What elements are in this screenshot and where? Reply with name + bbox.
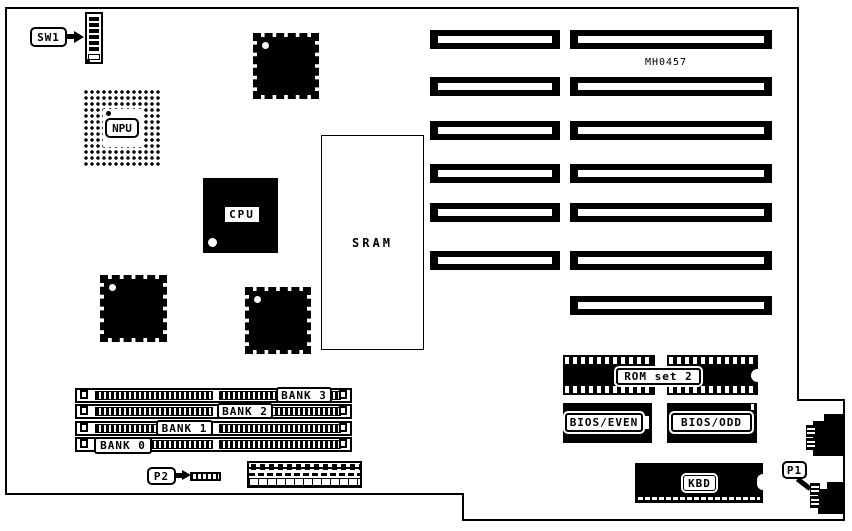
slot-opening: [578, 209, 764, 216]
slot-opening: [438, 36, 552, 43]
kbd-label: KBD: [683, 475, 716, 491]
slot-opening: [438, 127, 552, 134]
sram-chip: SRAM: [321, 135, 424, 350]
power-socket-row: [249, 478, 360, 486]
slot-opening: [438, 209, 552, 216]
qfp-chip-left: [100, 275, 167, 342]
expansion-slot: [430, 251, 560, 270]
dip-switch-segment: [89, 35, 99, 39]
simm-clip: [80, 423, 88, 432]
pin-header-icon: [806, 425, 816, 437]
power-connector: [247, 461, 362, 488]
sw1-label: SW1: [37, 31, 60, 44]
bank3-label: BANK 3: [276, 387, 332, 403]
simm-clip: [339, 439, 347, 448]
expansion-slot: [570, 77, 772, 96]
expansion-slot: [570, 121, 772, 140]
motherboard-diagram: SW1 NPU CPU SRAM MH0457: [0, 0, 852, 531]
kbd-pin-row: [638, 497, 760, 500]
bios-odd-label: BIOS/ODD: [671, 413, 752, 432]
p2-connector: [190, 472, 221, 481]
part-number-label: MH0457: [635, 57, 697, 68]
p1-label: P1: [787, 464, 802, 477]
expansion-slot: [430, 77, 560, 96]
rom-set-label: ROM set 2: [616, 368, 701, 385]
rom-pin-row: [669, 386, 756, 393]
power-pin-row: [249, 464, 360, 471]
p2-connector-pins: [193, 474, 219, 479]
rom-pin-row: [669, 357, 756, 364]
kbd-notch: [757, 474, 763, 490]
npu-center-area: NPU: [103, 109, 142, 147]
sw1-callout: SW1: [30, 27, 67, 47]
bios-odd-notch: [751, 404, 754, 410]
simm-clip: [339, 390, 347, 399]
slot-opening: [578, 36, 764, 43]
simm-socket-bank1: [75, 421, 352, 436]
dip-switch-pin1-dot: [85, 59, 90, 64]
slot-opening: [578, 257, 764, 264]
qfp-chip-right: [245, 287, 311, 354]
slot-opening: [438, 83, 552, 90]
dip-switch-segment: [89, 23, 99, 27]
cpu-chip: CPU: [203, 178, 278, 253]
dip-switch-segment: [89, 29, 99, 33]
simm-clip: [80, 390, 88, 399]
bios-even-label: BIOS/EVEN: [565, 413, 643, 432]
pin-header-icon: [810, 483, 820, 495]
bank0-label: BANK 0: [94, 437, 152, 454]
simm-contacts: [219, 440, 341, 449]
dip-switch-segment: [89, 41, 99, 45]
dip-switch-segment: [89, 17, 99, 21]
power-dash-row: [249, 473, 360, 476]
npu-label: NPU: [105, 118, 139, 138]
simm-clip: [339, 406, 347, 415]
pin1-marker-dot: [262, 42, 269, 49]
slot-opening: [578, 170, 764, 177]
slot-opening: [438, 257, 552, 264]
expansion-slot: [570, 30, 772, 49]
npu-pin1-dot: [106, 111, 111, 116]
pin-header-icon: [806, 438, 816, 450]
rom-pin-row: [565, 357, 653, 364]
pin1-marker-dot: [208, 238, 217, 247]
simm-contacts: [95, 391, 213, 400]
slot-opening: [578, 302, 764, 309]
simm-clip: [80, 406, 88, 415]
bank2-label: BANK 2: [217, 403, 273, 419]
simm-clip: [80, 439, 88, 448]
dip-switch-open-segment: [88, 54, 100, 60]
sram-label: SRAM: [322, 236, 423, 250]
bank1-label: BANK 1: [156, 420, 213, 436]
cpu-label: CPU: [224, 206, 260, 223]
simm-socket-bank2: [75, 404, 352, 419]
sw1-arrowhead-icon: [74, 31, 84, 43]
pin-header-icon: [810, 496, 820, 508]
pin1-marker-dot: [254, 296, 261, 303]
expansion-slot: [570, 203, 772, 222]
qfp-chip-top: [253, 33, 319, 99]
slot-opening: [438, 170, 552, 177]
p2-arrowhead-icon: [182, 470, 191, 480]
dip-switch-segment: [89, 47, 99, 51]
p1-callout: P1: [782, 461, 807, 479]
expansion-slot: [430, 30, 560, 49]
pin1-marker-dot: [109, 284, 116, 291]
slot-opening: [578, 83, 764, 90]
expansion-slot: [430, 164, 560, 183]
dip-switch: [85, 12, 103, 64]
simm-contacts: [219, 424, 341, 433]
p2-callout: P2: [147, 467, 176, 485]
simm-clip: [339, 423, 347, 432]
p2-label: P2: [154, 470, 169, 483]
expansion-slot: [430, 121, 560, 140]
rom-notch: [751, 369, 758, 382]
simm-contacts: [95, 407, 213, 416]
slot-opening: [578, 127, 764, 134]
expansion-slot: [430, 203, 560, 222]
expansion-slot: [570, 164, 772, 183]
expansion-slot: [570, 296, 772, 315]
expansion-slot: [570, 251, 772, 270]
rom-pin-row: [565, 386, 653, 393]
bios-even-notch: [645, 416, 649, 429]
npu-pga-chip: NPU: [82, 88, 161, 168]
